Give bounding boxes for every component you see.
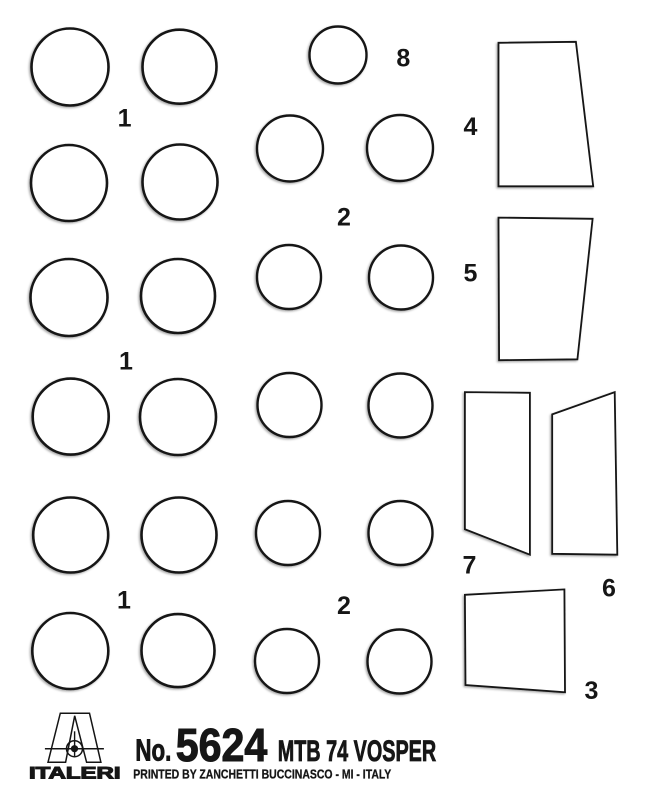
svg-text:PRINTED BY ZANCHETTI BUCCINASC: PRINTED BY ZANCHETTI BUCCINASCO - MI - I… <box>133 767 391 782</box>
svg-text:2: 2 <box>337 204 351 232</box>
svg-text:5624: 5624 <box>176 719 268 771</box>
svg-text:1: 1 <box>119 348 133 376</box>
svg-text:4: 4 <box>464 113 478 141</box>
svg-text:No.: No. <box>135 733 171 767</box>
svg-text:7: 7 <box>463 552 477 580</box>
svg-text:1: 1 <box>117 587 131 615</box>
svg-text:ITALERI: ITALERI <box>29 764 121 783</box>
svg-text:8: 8 <box>396 45 410 73</box>
svg-text:2: 2 <box>337 592 351 620</box>
svg-text:MTB 74 VOSPER: MTB 74 VOSPER <box>278 735 437 768</box>
svg-text:3: 3 <box>585 677 599 705</box>
svg-text:6: 6 <box>602 575 616 603</box>
svg-text:1: 1 <box>118 105 132 133</box>
svg-text:5: 5 <box>464 260 478 288</box>
